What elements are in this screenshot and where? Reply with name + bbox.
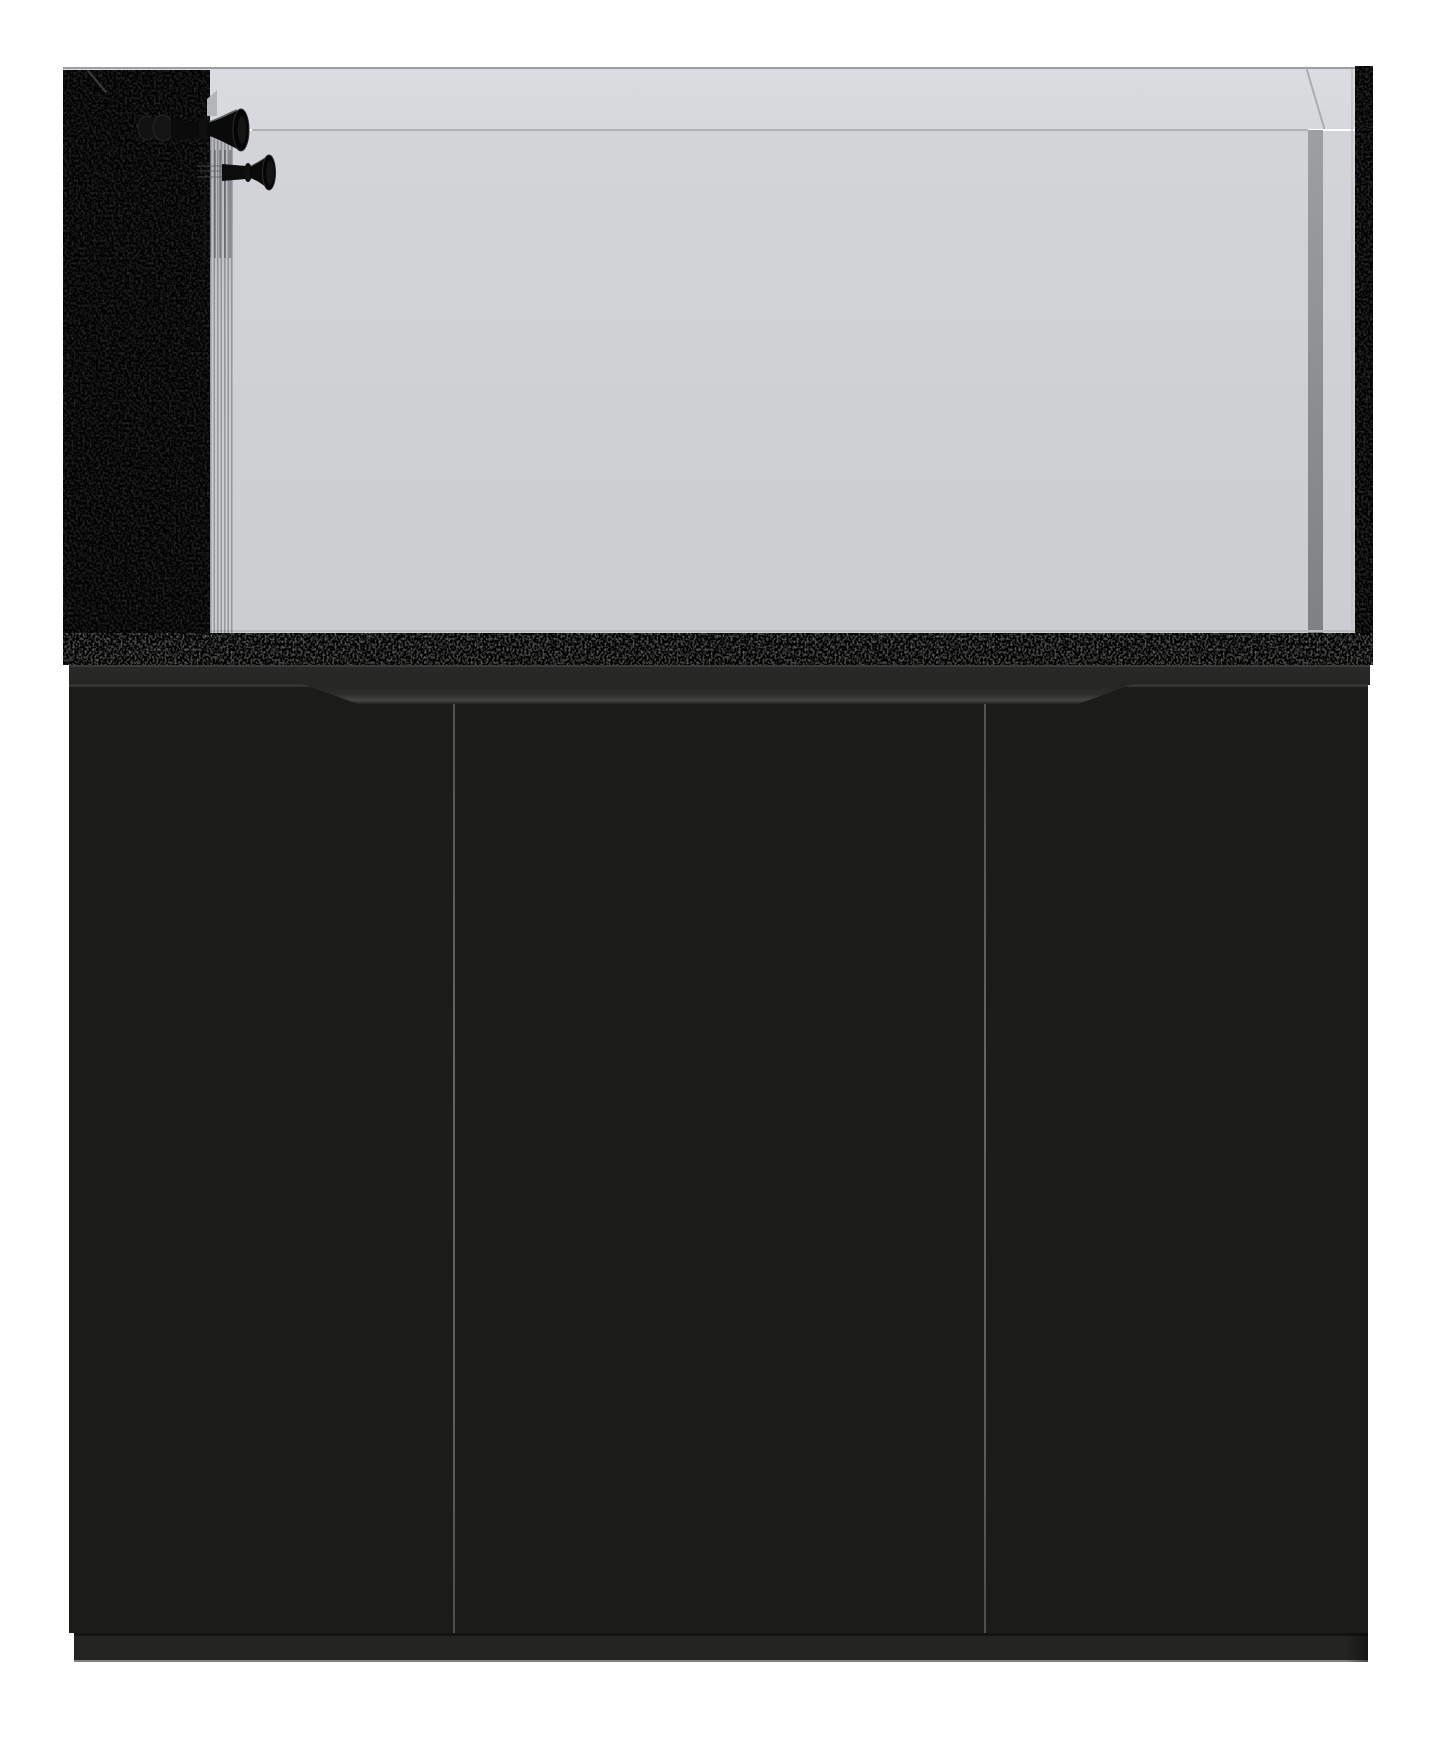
handle-recess	[303, 684, 1133, 704]
glass-corner-edge-right	[1308, 130, 1323, 633]
return-nozzle-upper	[138, 109, 249, 151]
cabinet-door-left	[69, 687, 453, 1633]
stand-plinth	[74, 1633, 1368, 1662]
cabinet-door-center	[455, 687, 984, 1633]
return-nozzles	[137, 95, 287, 200]
door-seam-left	[453, 704, 455, 1633]
tank-bottom-trim	[63, 633, 1373, 665]
stand-top-rail	[69, 665, 1370, 685]
tank-side-trim-right	[1355, 66, 1373, 633]
product-image	[0, 0, 1445, 1737]
waterline	[252, 129, 1308, 131]
door-seam-right	[984, 704, 986, 1633]
tank-top-rim	[63, 67, 1373, 69]
glass-inner-edge-right	[1351, 69, 1353, 634]
glass-bottom-inner-line	[210, 630, 1355, 632]
water-body	[63, 131, 1355, 634]
return-nozzle-lower	[197, 155, 276, 190]
cabinet-door-right	[986, 687, 1368, 1633]
